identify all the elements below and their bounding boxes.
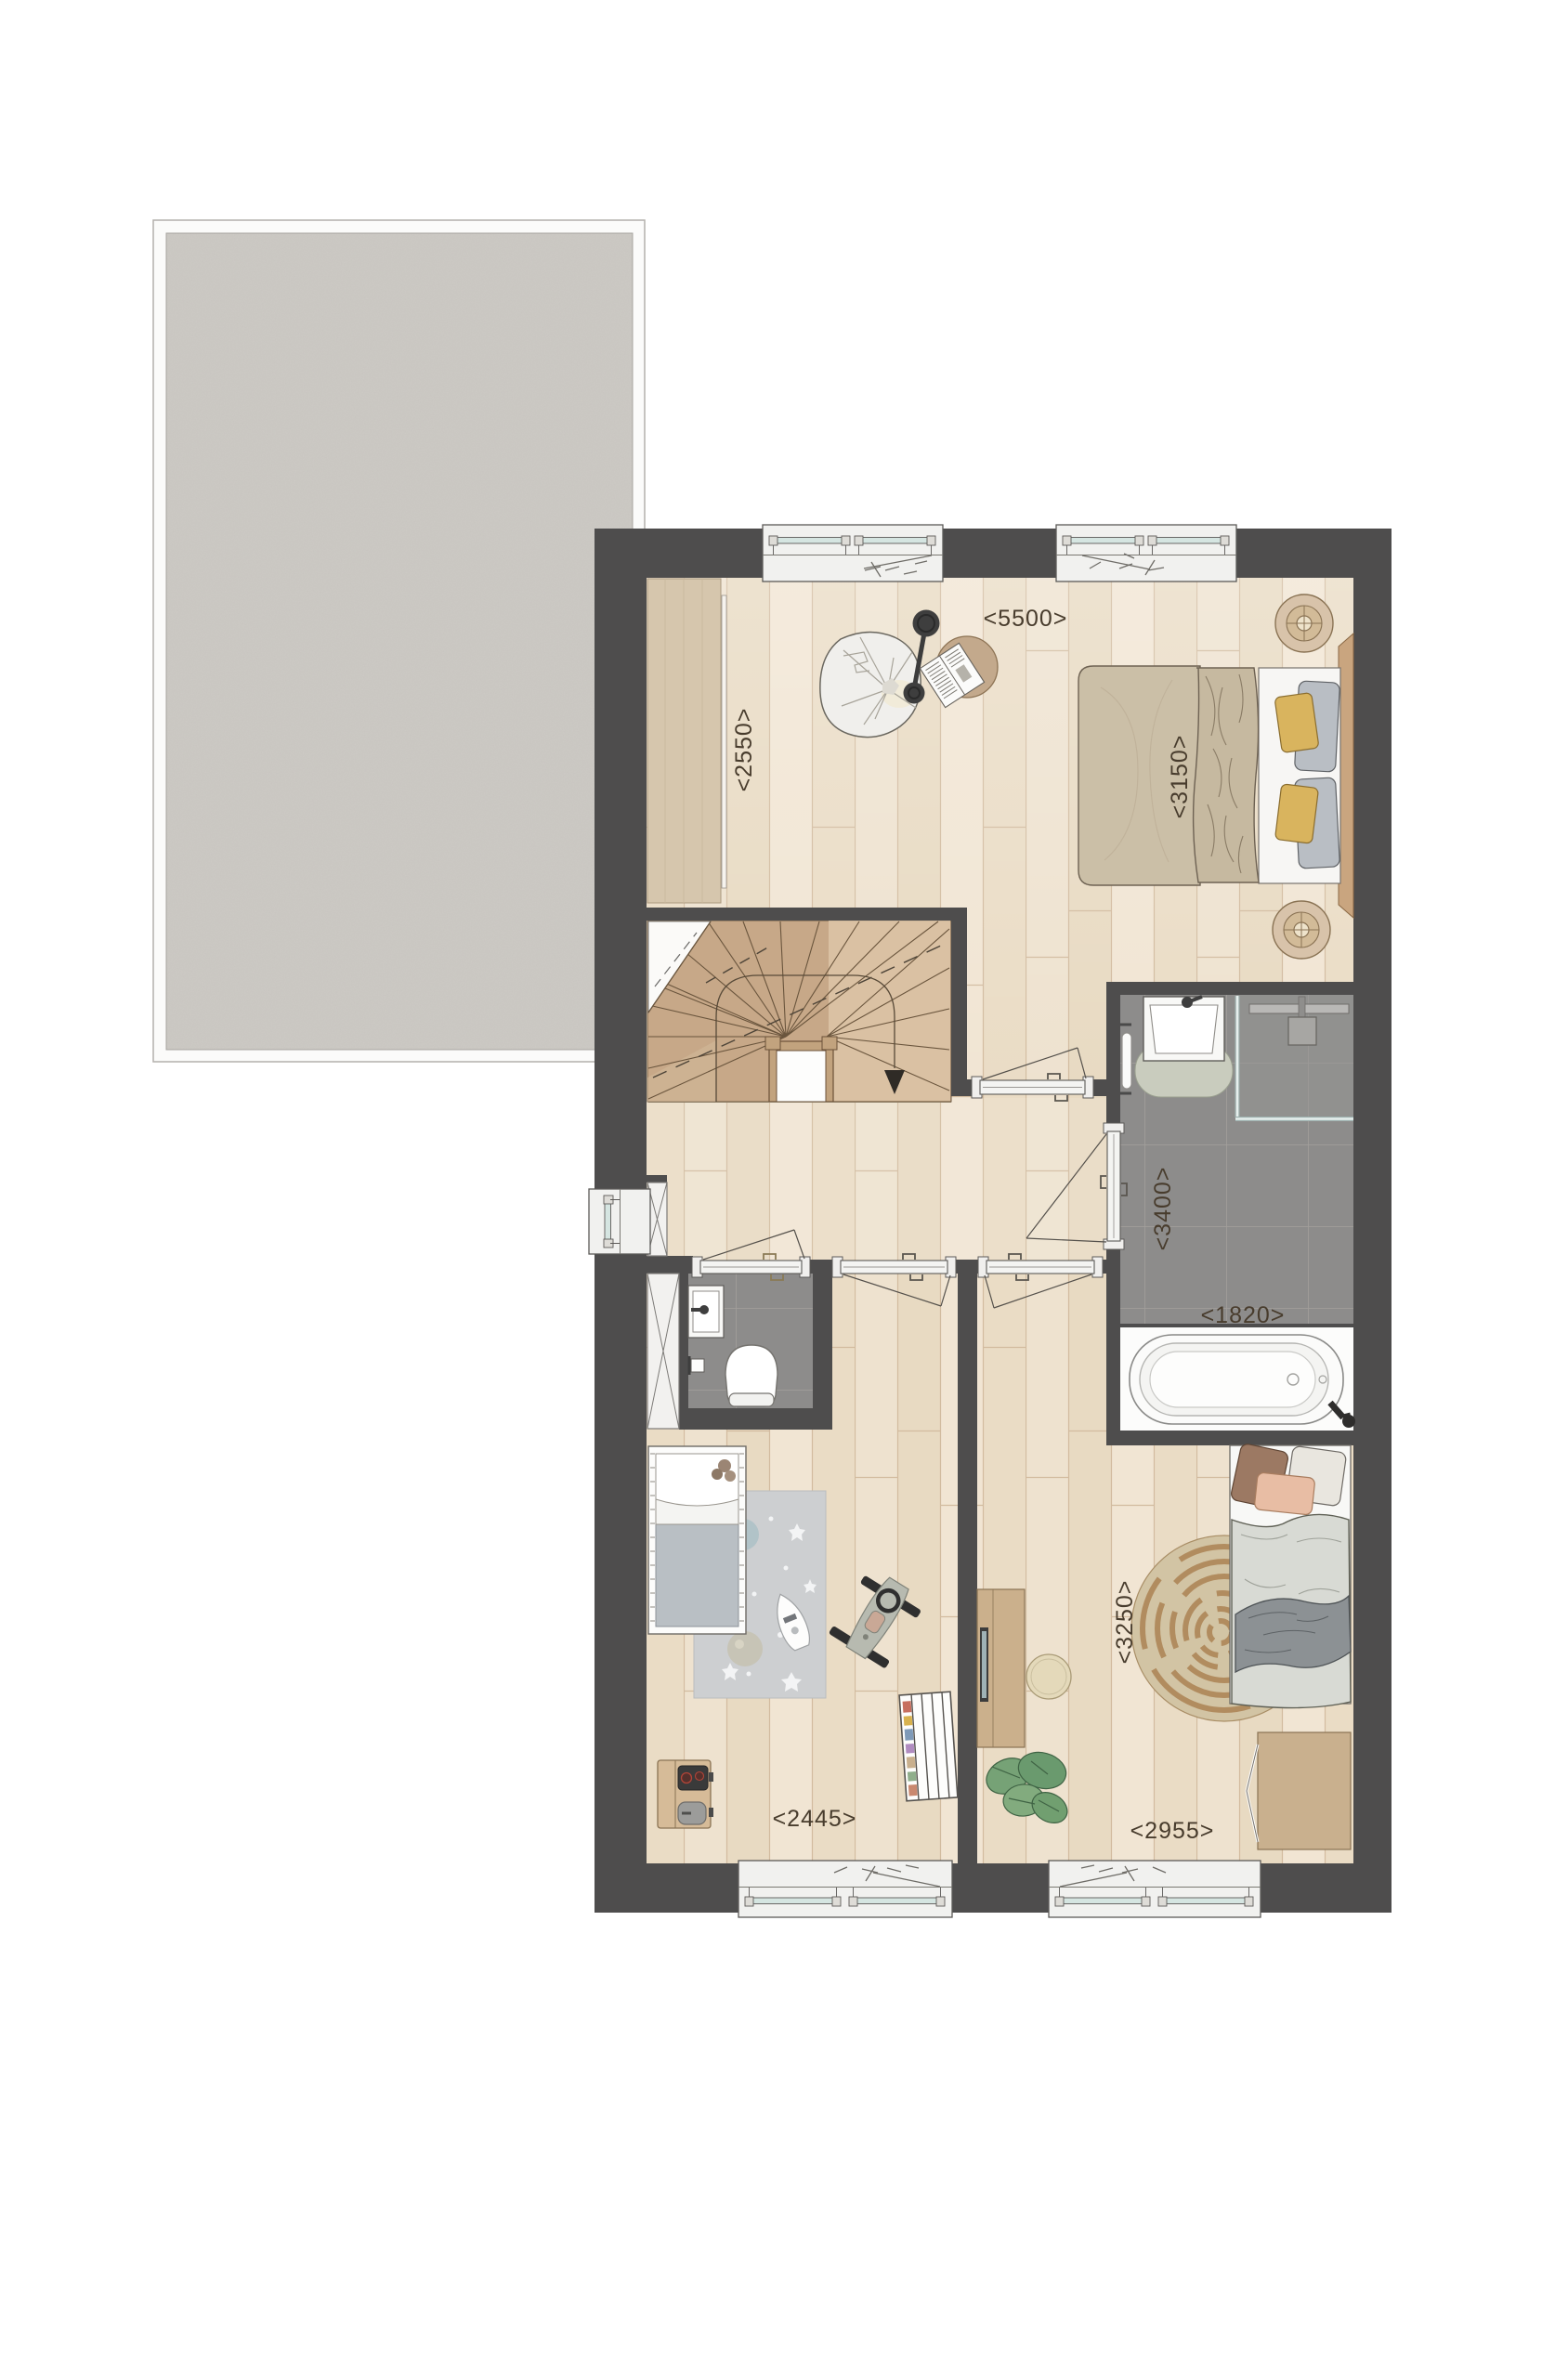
svg-text:<3250>: <3250> xyxy=(1112,1580,1138,1665)
svg-text:<1820>: <1820> xyxy=(1201,1302,1286,1328)
svg-text:<3150>: <3150> xyxy=(1167,735,1193,819)
svg-text:<2445>: <2445> xyxy=(773,1806,857,1832)
svg-text:<5500>: <5500> xyxy=(984,606,1068,632)
svg-text:<2550>: <2550> xyxy=(731,708,757,792)
svg-text:<2955>: <2955> xyxy=(1130,1818,1215,1844)
svg-text:<3400>: <3400> xyxy=(1150,1167,1176,1251)
